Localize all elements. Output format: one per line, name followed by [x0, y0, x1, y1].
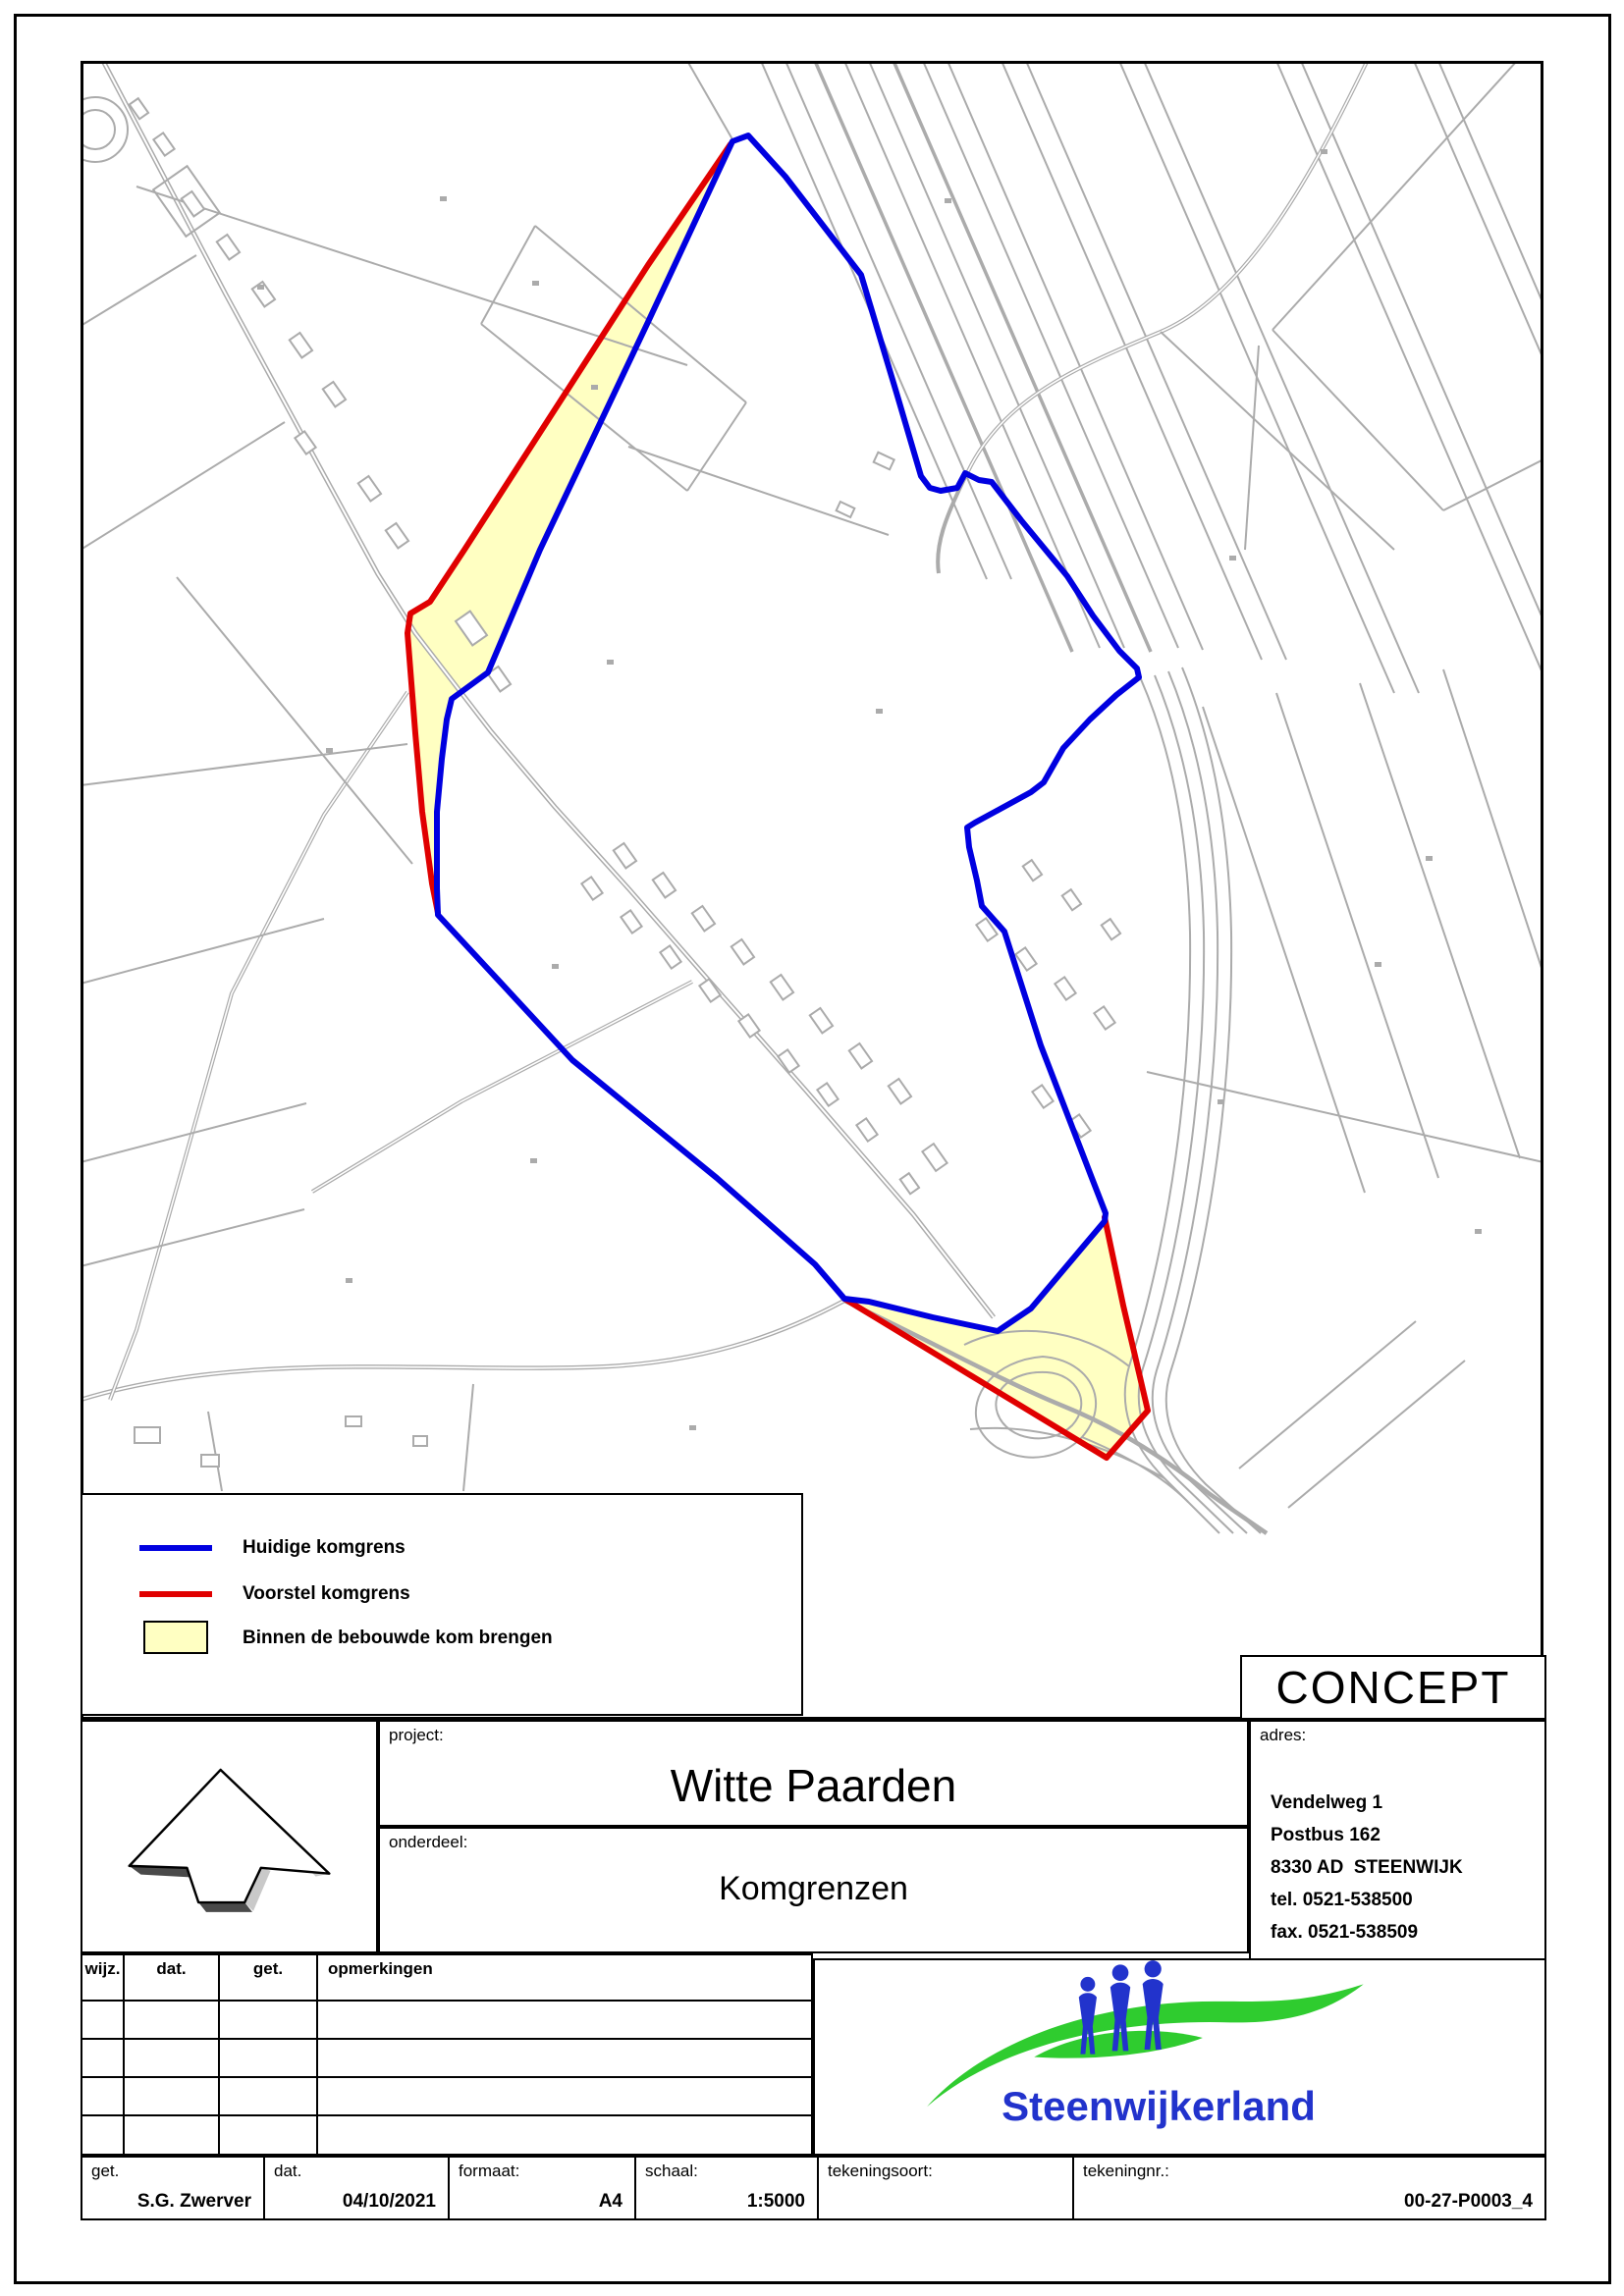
drawing-sheet: Huidige komgrens Voorstel komgrens Binne… [0, 0, 1624, 2296]
revision-row-cell [125, 2078, 220, 2116]
legend-label: Voorstel komgrens [243, 1583, 410, 1605]
revision-row-cell [125, 2040, 220, 2078]
footer-value: 1:5000 [747, 2191, 805, 2213]
onderdeel-title: Komgrenzen [380, 1870, 1247, 1908]
footer-cell-schaal: schaal: 1:5000 [636, 2158, 819, 2218]
revision-row-cell [125, 2116, 220, 2154]
revision-row-cell [220, 2078, 318, 2116]
project-label: project: [389, 1726, 444, 1745]
revision-table: wijz. dat. get. opmerkingen [81, 1953, 813, 2156]
footer-cell-tekeningnr: tekeningnr.: 00-27-P0003_4 [1074, 2158, 1544, 2218]
footer-strip: get. S.G. Zwerver dat. 04/10/2021 formaa… [81, 2156, 1546, 2220]
footer-cell-get: get. S.G. Zwerver [82, 2158, 265, 2218]
project-title: Witte Paarden [380, 1759, 1247, 1812]
revision-row-cell [220, 2040, 318, 2078]
footer-cell-tekeningsoort: tekeningsoort: [819, 2158, 1074, 2218]
footer-label: schaal: [645, 2162, 698, 2181]
legend-label: Huidige komgrens [243, 1537, 406, 1559]
footer-cell-dat: dat. 04/10/2021 [265, 2158, 450, 2218]
onderdeel-label: onderdeel: [389, 1833, 467, 1852]
legend-label: Binnen de bebouwde kom brengen [243, 1628, 553, 1649]
map-canvas [81, 61, 1543, 1720]
revision-row-cell [220, 2116, 318, 2154]
footer-value: 04/10/2021 [343, 2191, 436, 2213]
proposal-boundary-line [407, 144, 1148, 1458]
revision-row-cell [82, 2078, 125, 2116]
footer-label: get. [91, 2162, 119, 2181]
legend-item-built-up-area: Binnen de bebouwde kom brengen [82, 1619, 801, 1658]
revision-row-cell [125, 2002, 220, 2040]
legend-swatch-current-boundary [139, 1545, 212, 1551]
revision-row-cell [82, 2002, 125, 2040]
revision-row-cell [318, 2002, 811, 2040]
footer-label: dat. [274, 2162, 301, 2181]
logo-text: Steenwijkerland [933, 2083, 1384, 2130]
legend-swatch-proposal-boundary [139, 1591, 212, 1597]
footer-value: S.G. Zwerver [137, 2191, 251, 2213]
legend-swatch-built-up-area [143, 1621, 208, 1654]
footer-label: formaat: [459, 2162, 519, 2181]
legend: Huidige komgrens Voorstel komgrens Binne… [81, 1493, 803, 1716]
revision-header-dat: dat. [125, 1955, 220, 2002]
revision-row-cell [220, 2002, 318, 2040]
footer-label: tekeningsoort: [828, 2162, 933, 2181]
north-arrow-box [81, 1720, 378, 1953]
revision-row-cell [82, 2040, 125, 2078]
map-frame [82, 63, 1543, 1719]
project-cell: project: Witte Paarden [378, 1720, 1249, 1827]
legend-item-proposal: Voorstel komgrens [82, 1575, 801, 1614]
revision-row-cell [318, 2078, 811, 2116]
onderdeel-cell: onderdeel: Komgrenzen [378, 1827, 1249, 1953]
base-map-lines [81, 61, 1543, 1533]
revision-header-wijz: wijz. [82, 1955, 125, 2002]
legend-item-current: Huidige komgrens [82, 1528, 801, 1568]
footer-cell-formaat: formaat: A4 [450, 2158, 636, 2218]
revision-row-cell [318, 2116, 811, 2154]
footer-label: tekeningnr.: [1083, 2162, 1169, 2181]
revision-header-opmerkingen: opmerkingen [318, 1955, 811, 2002]
adres-box: adres: Vendelweg 1 Postbus 162 8330 AD S… [1249, 1720, 1546, 1960]
adres-label: adres: [1260, 1726, 1306, 1745]
revision-row-cell [82, 2116, 125, 2154]
concept-stamp: CONCEPT [1240, 1655, 1546, 1720]
footer-value: 00-27-P0003_4 [1404, 2191, 1533, 2213]
adres-lines: Vendelweg 1 Postbus 162 8330 AD STEENWIJ… [1271, 1787, 1463, 1949]
revision-header-get: get. [220, 1955, 318, 2002]
revision-row-cell [318, 2040, 811, 2078]
north-arrow-icon [82, 1722, 375, 1950]
built-up-areas [407, 142, 1148, 1458]
footer-value: A4 [599, 2191, 623, 2213]
